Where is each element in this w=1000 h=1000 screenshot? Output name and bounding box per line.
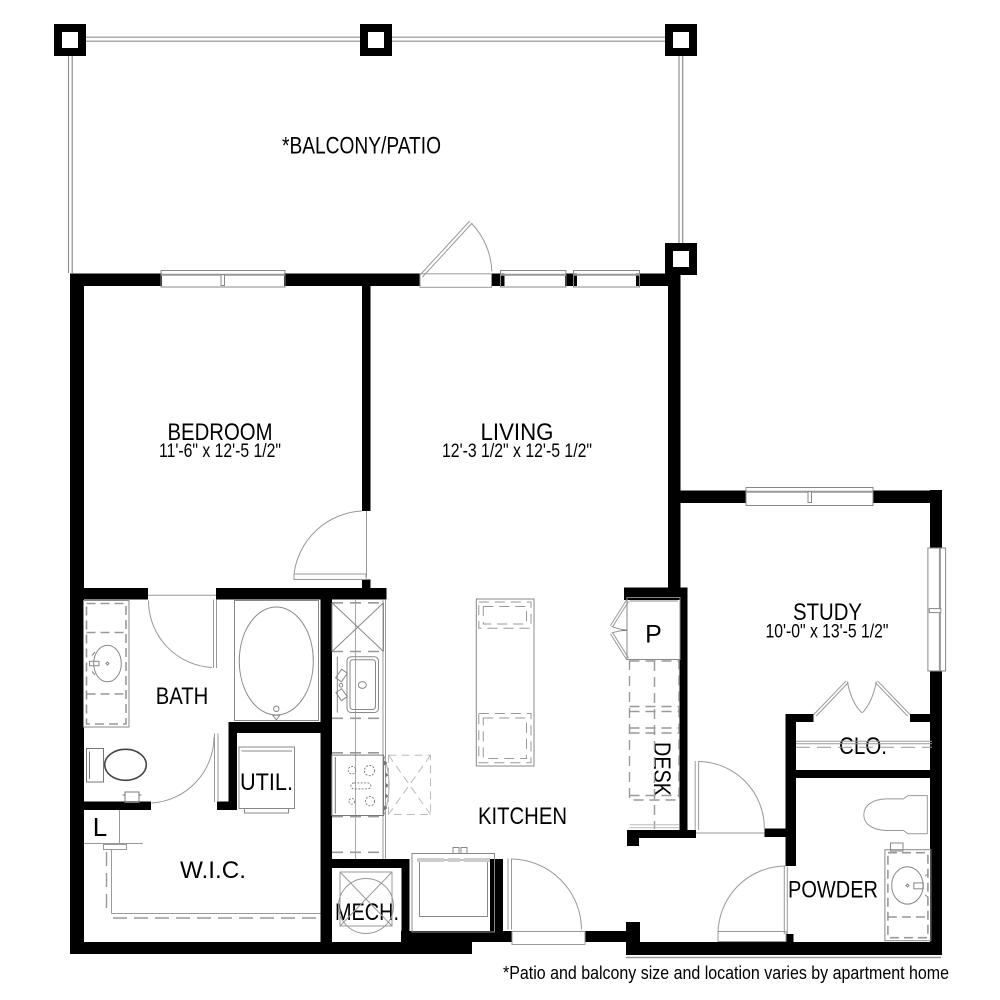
svg-text:P: P bbox=[645, 621, 662, 649]
svg-text:BATH: BATH bbox=[156, 683, 209, 710]
svg-text:KITCHEN: KITCHEN bbox=[478, 803, 567, 830]
svg-text:W.I.C.: W.I.C. bbox=[180, 857, 246, 884]
svg-text:10'-0" x 13'-5 1/2": 10'-0" x 13'-5 1/2" bbox=[766, 621, 889, 643]
svg-text:L: L bbox=[93, 812, 107, 842]
svg-text:*Patio and balcony size and lo: *Patio and balcony size and location var… bbox=[503, 962, 949, 983]
svg-text:12'-3 1/2" x 12'-5 1/2": 12'-3 1/2" x 12'-5 1/2" bbox=[442, 440, 592, 462]
svg-text:MECH.: MECH. bbox=[335, 899, 399, 926]
svg-text:*BALCONY/PATIO: *BALCONY/PATIO bbox=[282, 133, 441, 160]
svg-text:POWDER: POWDER bbox=[788, 877, 878, 904]
svg-text:11'-6" x 12'-5 1/2": 11'-6" x 12'-5 1/2" bbox=[159, 440, 281, 462]
svg-text:UTIL.: UTIL. bbox=[240, 769, 293, 796]
svg-text:CLO.: CLO. bbox=[839, 733, 887, 760]
svg-text:DESK: DESK bbox=[648, 742, 675, 796]
